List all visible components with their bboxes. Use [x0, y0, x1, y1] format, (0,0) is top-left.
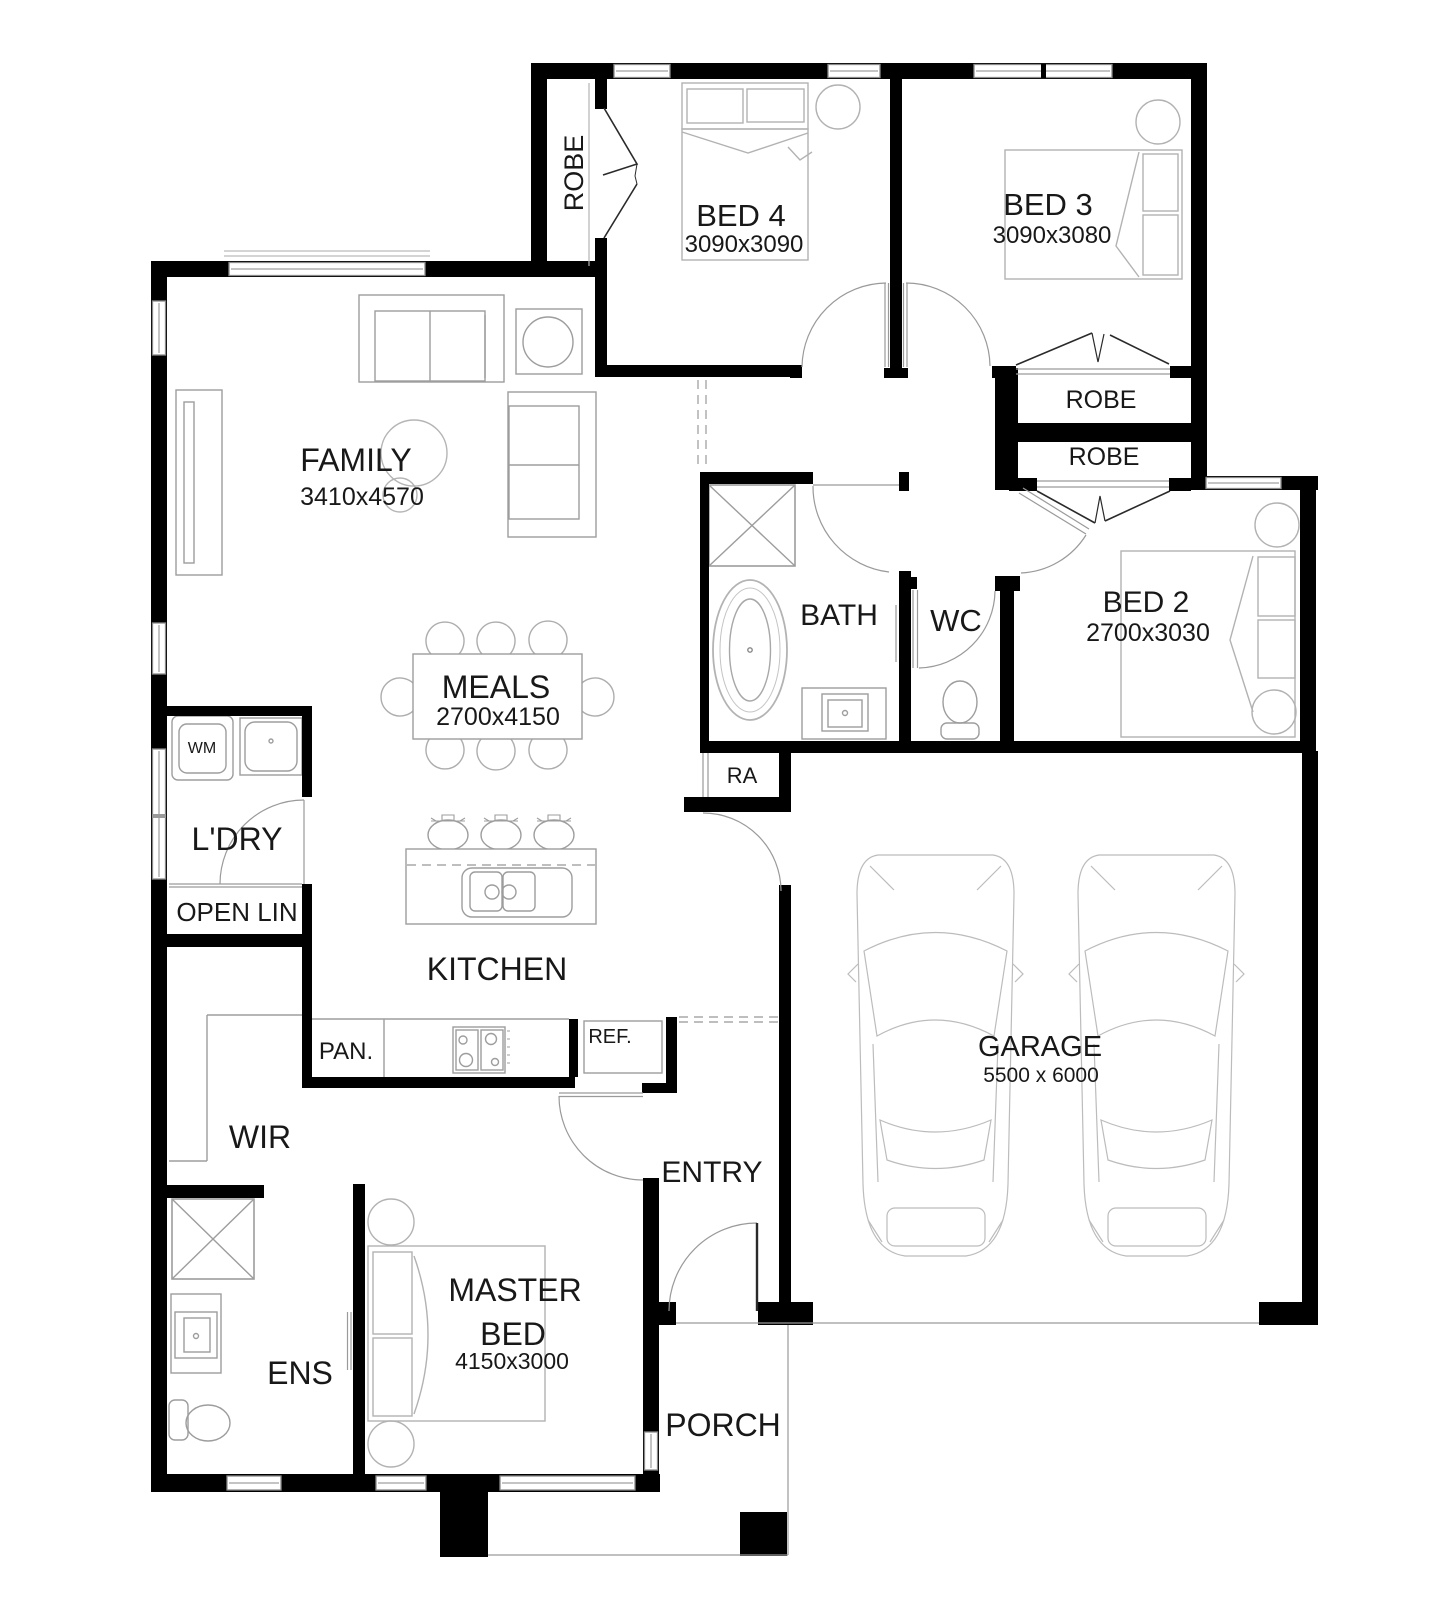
svg-text:ENTRY: ENTRY	[661, 1156, 762, 1189]
svg-text:ROBE: ROBE	[1069, 443, 1140, 471]
svg-text:REF.: REF.	[588, 1026, 631, 1048]
svg-text:3090x3090: 3090x3090	[685, 231, 804, 258]
svg-text:BED 4: BED 4	[696, 198, 786, 233]
svg-text:L'DRY: L'DRY	[192, 821, 283, 857]
svg-text:3090x3080: 3090x3080	[993, 222, 1112, 249]
svg-text:BATH: BATH	[800, 599, 878, 632]
svg-text:WIR: WIR	[229, 1119, 291, 1155]
svg-text:OPEN LIN: OPEN LIN	[176, 897, 297, 927]
svg-text:2700x3030: 2700x3030	[1086, 619, 1210, 647]
svg-text:5500 x 6000: 5500 x 6000	[983, 1064, 1099, 1087]
svg-text:PAN.: PAN.	[319, 1038, 373, 1065]
svg-text:WC: WC	[930, 603, 982, 638]
svg-text:PORCH: PORCH	[665, 1407, 781, 1443]
svg-text:MEALS: MEALS	[442, 669, 550, 705]
svg-text:BED 3: BED 3	[1003, 187, 1093, 222]
svg-text:RA: RA	[727, 763, 758, 788]
svg-text:FAMILY: FAMILY	[300, 442, 411, 478]
svg-text:ROBE: ROBE	[1066, 386, 1137, 414]
svg-text:4150x3000: 4150x3000	[455, 1348, 569, 1374]
svg-text:GARAGE: GARAGE	[978, 1031, 1102, 1063]
svg-text:ROBE: ROBE	[559, 135, 589, 212]
svg-text:WM: WM	[188, 740, 216, 757]
svg-text:KITCHEN: KITCHEN	[427, 951, 567, 987]
svg-text:ENS: ENS	[267, 1355, 333, 1391]
svg-text:BED: BED	[480, 1316, 546, 1352]
svg-text:MASTER: MASTER	[448, 1272, 581, 1308]
svg-text:BED 2: BED 2	[1103, 586, 1190, 619]
svg-text:2700x4150: 2700x4150	[436, 703, 560, 731]
svg-text:3410x4570: 3410x4570	[300, 483, 424, 511]
